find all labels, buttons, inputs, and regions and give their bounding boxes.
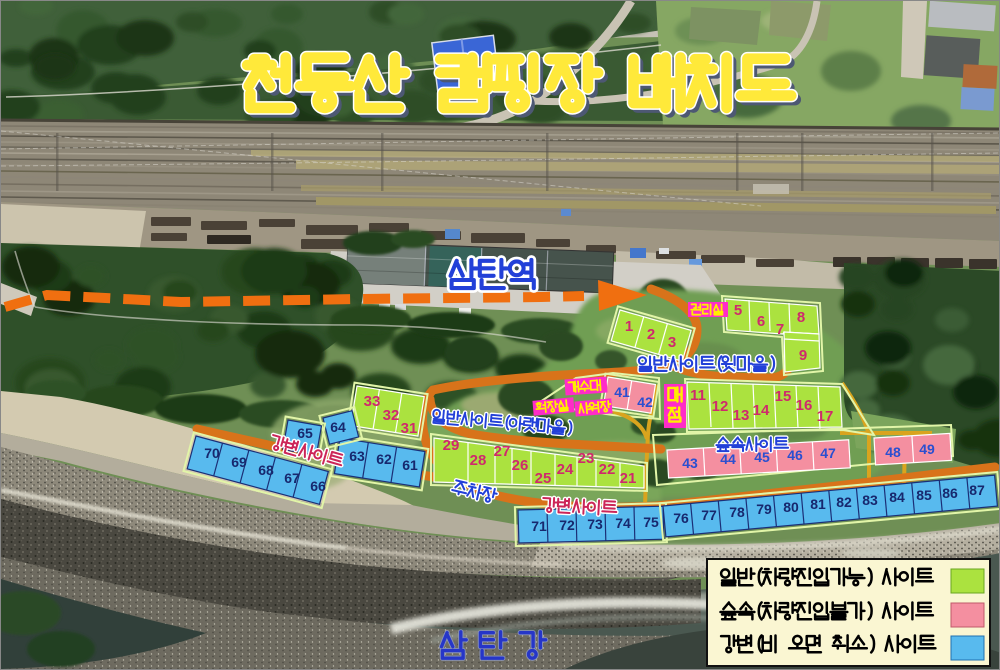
svg-text:66: 66 — [310, 478, 326, 494]
svg-text:25: 25 — [535, 470, 552, 487]
svg-text:27: 27 — [494, 443, 511, 460]
svg-text:8: 8 — [797, 309, 805, 326]
svg-text:15: 15 — [775, 388, 792, 405]
svg-text:76: 76 — [673, 510, 689, 526]
svg-text:29: 29 — [443, 437, 460, 454]
svg-text:67: 67 — [284, 470, 300, 486]
svg-text:43: 43 — [682, 455, 698, 471]
svg-text:2: 2 — [647, 326, 655, 343]
svg-text:32: 32 — [383, 407, 400, 424]
svg-text:82: 82 — [836, 494, 852, 510]
svg-text:68: 68 — [258, 462, 274, 478]
svg-text:80: 80 — [783, 499, 799, 515]
svg-text:1: 1 — [625, 318, 633, 335]
svg-text:48: 48 — [885, 444, 901, 460]
svg-text:14: 14 — [753, 402, 770, 419]
svg-text:61: 61 — [402, 457, 418, 473]
svg-text:12: 12 — [712, 398, 729, 415]
svg-text:47: 47 — [820, 445, 836, 461]
svg-text:64: 64 — [330, 419, 346, 435]
svg-text:31: 31 — [401, 420, 418, 437]
svg-text:13: 13 — [733, 407, 750, 424]
svg-text:22: 22 — [599, 461, 616, 478]
svg-text:9: 9 — [799, 347, 807, 364]
svg-text:84: 84 — [889, 489, 905, 505]
svg-text:74: 74 — [615, 515, 631, 531]
svg-text:78: 78 — [729, 504, 745, 520]
svg-text:16: 16 — [796, 397, 813, 414]
svg-text:26: 26 — [512, 457, 529, 474]
svg-text:65: 65 — [297, 425, 313, 441]
svg-text:33: 33 — [364, 393, 381, 410]
svg-text:23: 23 — [578, 450, 595, 467]
svg-text:5: 5 — [734, 302, 742, 319]
svg-text:28: 28 — [470, 452, 487, 469]
svg-text:70: 70 — [204, 445, 220, 461]
svg-text:6: 6 — [757, 313, 765, 330]
svg-text:42: 42 — [637, 394, 653, 410]
svg-text:86: 86 — [942, 485, 958, 501]
svg-text:17: 17 — [817, 408, 834, 425]
svg-text:24: 24 — [557, 461, 574, 478]
svg-text:72: 72 — [559, 517, 575, 533]
svg-text:73: 73 — [587, 516, 603, 532]
svg-text:69: 69 — [231, 454, 247, 470]
svg-text:75: 75 — [643, 514, 659, 530]
svg-text:62: 62 — [376, 451, 392, 467]
svg-text:63: 63 — [349, 448, 365, 464]
svg-text:81: 81 — [810, 496, 826, 512]
svg-text:7: 7 — [776, 321, 784, 338]
svg-text:83: 83 — [862, 492, 878, 508]
svg-text:85: 85 — [916, 487, 932, 503]
svg-text:79: 79 — [756, 501, 772, 517]
svg-text:11: 11 — [690, 387, 706, 404]
svg-text:71: 71 — [531, 518, 547, 534]
svg-text:49: 49 — [919, 441, 935, 457]
svg-text:77: 77 — [701, 507, 717, 523]
svg-text:21: 21 — [620, 470, 637, 487]
svg-text:41: 41 — [614, 384, 630, 400]
svg-text:3: 3 — [668, 334, 676, 351]
svg-text:87: 87 — [969, 482, 985, 498]
